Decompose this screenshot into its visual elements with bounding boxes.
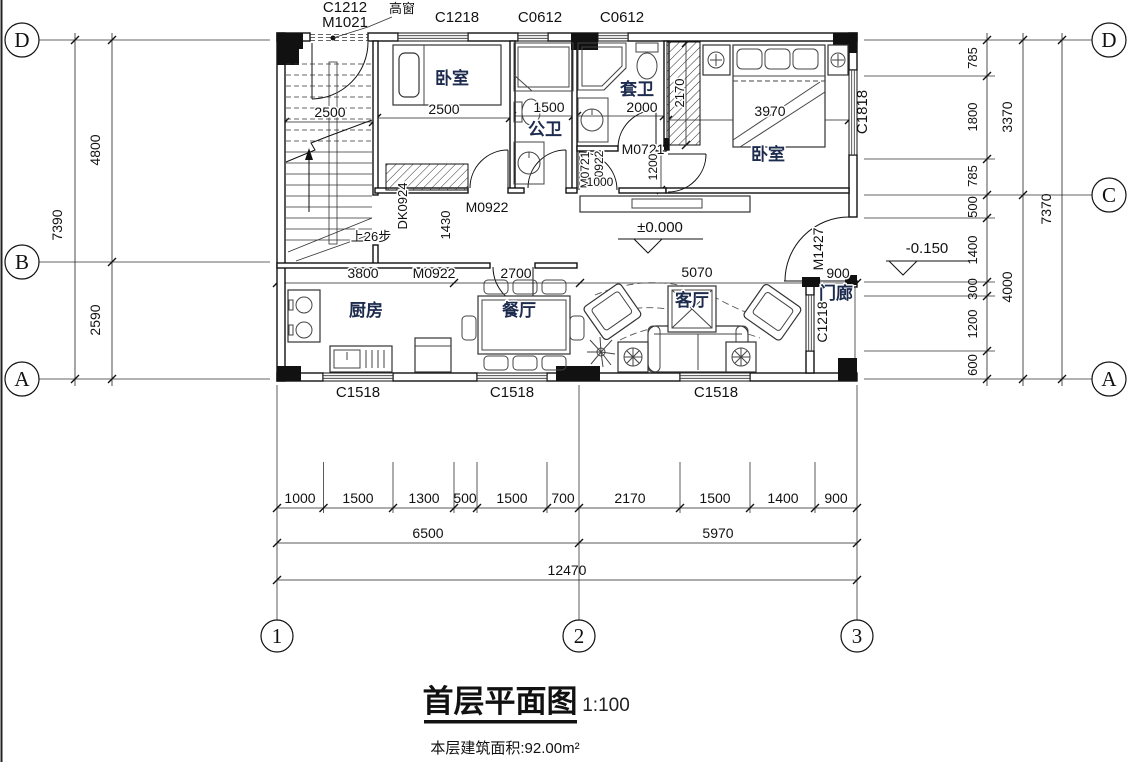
- wall-segment: [373, 245, 378, 265]
- high-window-c1212: [310, 35, 368, 41]
- fridge: [415, 338, 451, 372]
- grid-bubble-left-A: A: [5, 362, 39, 396]
- dining-set: [462, 280, 584, 370]
- dim-bottom-seg: 900: [824, 490, 848, 506]
- window-tag-c0612-right: C0612: [600, 9, 644, 26]
- window-c1218-porch: [806, 295, 814, 351]
- stove: [288, 290, 320, 342]
- side-table-left: [618, 342, 648, 372]
- dim-ensuite-bath: 2000: [626, 99, 657, 115]
- dim-right-seg: 1200: [965, 310, 980, 339]
- elevation-zero-label: ±0.000: [637, 219, 683, 236]
- wall-segment: [628, 33, 857, 41]
- dim-right-seg: 600: [965, 354, 980, 376]
- floor-plan-page: D B A D C A 1 2 3 C1212 M1021 高窗 C1218 C…: [0, 0, 1132, 762]
- door-m0721-public-bath: [528, 150, 566, 188]
- dim-bottom-seg: 1500: [342, 490, 373, 506]
- wall-segment: [666, 188, 849, 193]
- shower-public: [514, 43, 573, 91]
- dim-bottom-seg: 1500: [496, 490, 527, 506]
- kitchen-sink: [330, 346, 392, 372]
- grid-label: 2: [574, 624, 585, 648]
- grid-bubble-right-D: D: [1092, 23, 1126, 57]
- window-c0612-right: [598, 33, 628, 41]
- dim-bottom-mid: 6500: [412, 525, 443, 541]
- door-tag-m0922-bedroom: M0922: [466, 199, 509, 215]
- dim-corridor: 1430: [438, 211, 453, 240]
- dim-bottom-mid: 5970: [702, 525, 733, 541]
- window-tag-c1218-top: C1218: [435, 9, 479, 26]
- opening-tag-dk0924: DK0924: [395, 183, 410, 230]
- armchair-right: [743, 283, 803, 342]
- window-tag-c0612-left: C0612: [518, 9, 562, 26]
- stair-handrail: [329, 62, 337, 244]
- dim-wardrobe: 2170: [672, 79, 687, 108]
- floor-plan-canvas: D B A D C A 1 2 3 C1212 M1021 高窗 C1218 C…: [0, 0, 1132, 762]
- window-c1518-3: [680, 373, 750, 381]
- dim-hall-height: 1200: [646, 153, 660, 180]
- door-tag-m1427: M1427: [810, 227, 826, 270]
- dim-bedroom-right: 3970: [754, 103, 785, 119]
- title-underline: [424, 720, 577, 724]
- door-m1021-entry-stair: [312, 42, 368, 99]
- dim-kitchen-width: 3800: [347, 265, 378, 281]
- side-table-right: [726, 342, 756, 372]
- dim-right-seg: 500: [965, 196, 980, 218]
- dim-living-width: 5070: [681, 264, 712, 280]
- dim-left-total: 7390: [49, 209, 65, 240]
- nightstand-left: [703, 45, 730, 75]
- grid-label: D: [1101, 28, 1116, 52]
- dim-porch-width: 900: [826, 265, 850, 281]
- room-label-ensuite-bath: 套卫: [619, 79, 654, 99]
- room-label-living: 客厅: [674, 290, 709, 310]
- window-tag-c1818: C1818: [854, 90, 871, 134]
- dim-bottom-seg: 700: [551, 490, 575, 506]
- dim-right-seg: 1800: [965, 103, 980, 132]
- grid-label: 3: [852, 624, 863, 648]
- dim-bedroom-left-width: 2500: [428, 101, 459, 117]
- plant: [587, 337, 615, 367]
- elevation-minus-label: -0.150: [906, 240, 949, 257]
- window-c0612-left: [518, 33, 548, 41]
- dim-bottom-seg: 2170: [614, 490, 645, 506]
- dim-right-seg: 785: [965, 165, 980, 187]
- room-label-public-bath: 公卫: [528, 120, 562, 139]
- dim-bottom-total: 12470: [548, 562, 587, 578]
- dim-right-total: 7370: [1038, 193, 1054, 224]
- grid-label: B: [15, 250, 29, 274]
- wall-segment: [373, 41, 378, 195]
- tv-cabinet: [580, 196, 750, 212]
- grid-label: C: [1102, 183, 1116, 207]
- grid-label: A: [14, 367, 30, 391]
- dim-left-seg: 2590: [87, 304, 103, 335]
- window-c1518-2: [477, 373, 547, 381]
- dim-left-seg: 4800: [87, 134, 103, 165]
- dim-right-seg: 785: [965, 47, 980, 69]
- drawing-title: 首层平面图: [423, 684, 578, 719]
- dim-right-mid: 4000: [999, 271, 1015, 302]
- grid-bubble-left-B: B: [5, 245, 39, 279]
- title-block: 首层平面图 1:100 本层建筑面积:92.00m²: [423, 684, 630, 757]
- wall-segment: [277, 33, 285, 381]
- room-label-porch: 门廊: [819, 283, 853, 303]
- high-window-note: 高窗: [389, 1, 415, 16]
- wall-segment: [806, 351, 814, 373]
- room-label-dining: 餐厅: [502, 300, 536, 320]
- dim-hall-width: 1000: [587, 175, 614, 189]
- door-tag-m1021: M1021: [322, 14, 368, 31]
- grid-bubble-left-D: D: [5, 23, 39, 57]
- armchair-left: [583, 282, 643, 341]
- room-label-bedroom-left: 卧室: [435, 68, 469, 88]
- pillow: [399, 53, 419, 97]
- grid-label: D: [14, 28, 29, 52]
- grid-label: 1: [272, 624, 283, 648]
- stair-direction-arrow: [305, 148, 313, 212]
- wall-segment: [393, 373, 477, 381]
- nightstand-right: [828, 45, 848, 75]
- dim-bottom-seg: 1300: [408, 490, 439, 506]
- dim-bottom-seg: 1500: [699, 490, 730, 506]
- door-m0922-bedroom-left: [470, 150, 508, 188]
- dim-public-bath: 1500: [533, 99, 564, 115]
- dim-right-seg: 1400: [965, 236, 980, 265]
- wall-segment: [468, 33, 518, 41]
- drawing-scale: 1:100: [582, 695, 630, 716]
- dim-dining-width: 2700: [500, 265, 531, 281]
- basin-ensuite: [578, 98, 608, 142]
- bed-right: [733, 45, 825, 147]
- area-note: 本层建筑面积:92.00m²: [430, 740, 579, 757]
- grid-bubble-2: 2: [563, 620, 595, 652]
- dim-stair-width: 2500: [314, 104, 345, 120]
- wall-segment: [277, 263, 490, 268]
- door-bedroom-right: [668, 154, 706, 192]
- window-c1218-top: [398, 33, 468, 41]
- toilet-ensuite: [636, 43, 658, 79]
- window-tag-c1518-2: C1518: [490, 384, 534, 401]
- stair-note: 上26步: [351, 229, 391, 244]
- dim-bottom-seg: 1400: [767, 490, 798, 506]
- grid-bubble-right-C: C: [1092, 178, 1126, 212]
- window-c1518-1: [323, 373, 393, 381]
- elevation-minus-marker: [886, 261, 970, 275]
- elevation-zero-marker: [618, 239, 703, 253]
- wall-segment: [849, 155, 857, 217]
- wall-segment: [368, 33, 398, 41]
- grid-bubble-right-A: A: [1092, 362, 1126, 396]
- window-tag-c1518-3: C1518: [694, 384, 738, 401]
- dim-right-seg: 300: [965, 278, 980, 300]
- dim-bottom-seg: 1000: [284, 490, 315, 506]
- window-tag-c1518-1: C1518: [336, 384, 380, 401]
- room-label-kitchen: 厨房: [349, 300, 383, 320]
- window-tag-c1218-porch: C1218: [814, 301, 830, 342]
- door-tag-m0922-kitchen: M0922: [413, 265, 456, 281]
- grid-bubble-1: 1: [261, 620, 293, 652]
- room-label-bedroom-right: 卧室: [751, 144, 785, 164]
- wall-segment: [566, 188, 577, 193]
- wall-segment: [619, 188, 666, 193]
- wall-segment: [535, 263, 577, 268]
- grid-label: A: [1101, 367, 1117, 391]
- wall-segment: [508, 188, 524, 193]
- shower-ensuite: [578, 43, 626, 90]
- wall-segment: [577, 146, 618, 151]
- dim-bottom-seg: 500: [453, 490, 477, 506]
- grid-bubble-3: 3: [841, 620, 873, 652]
- dim-right-mid: 3370: [999, 101, 1015, 132]
